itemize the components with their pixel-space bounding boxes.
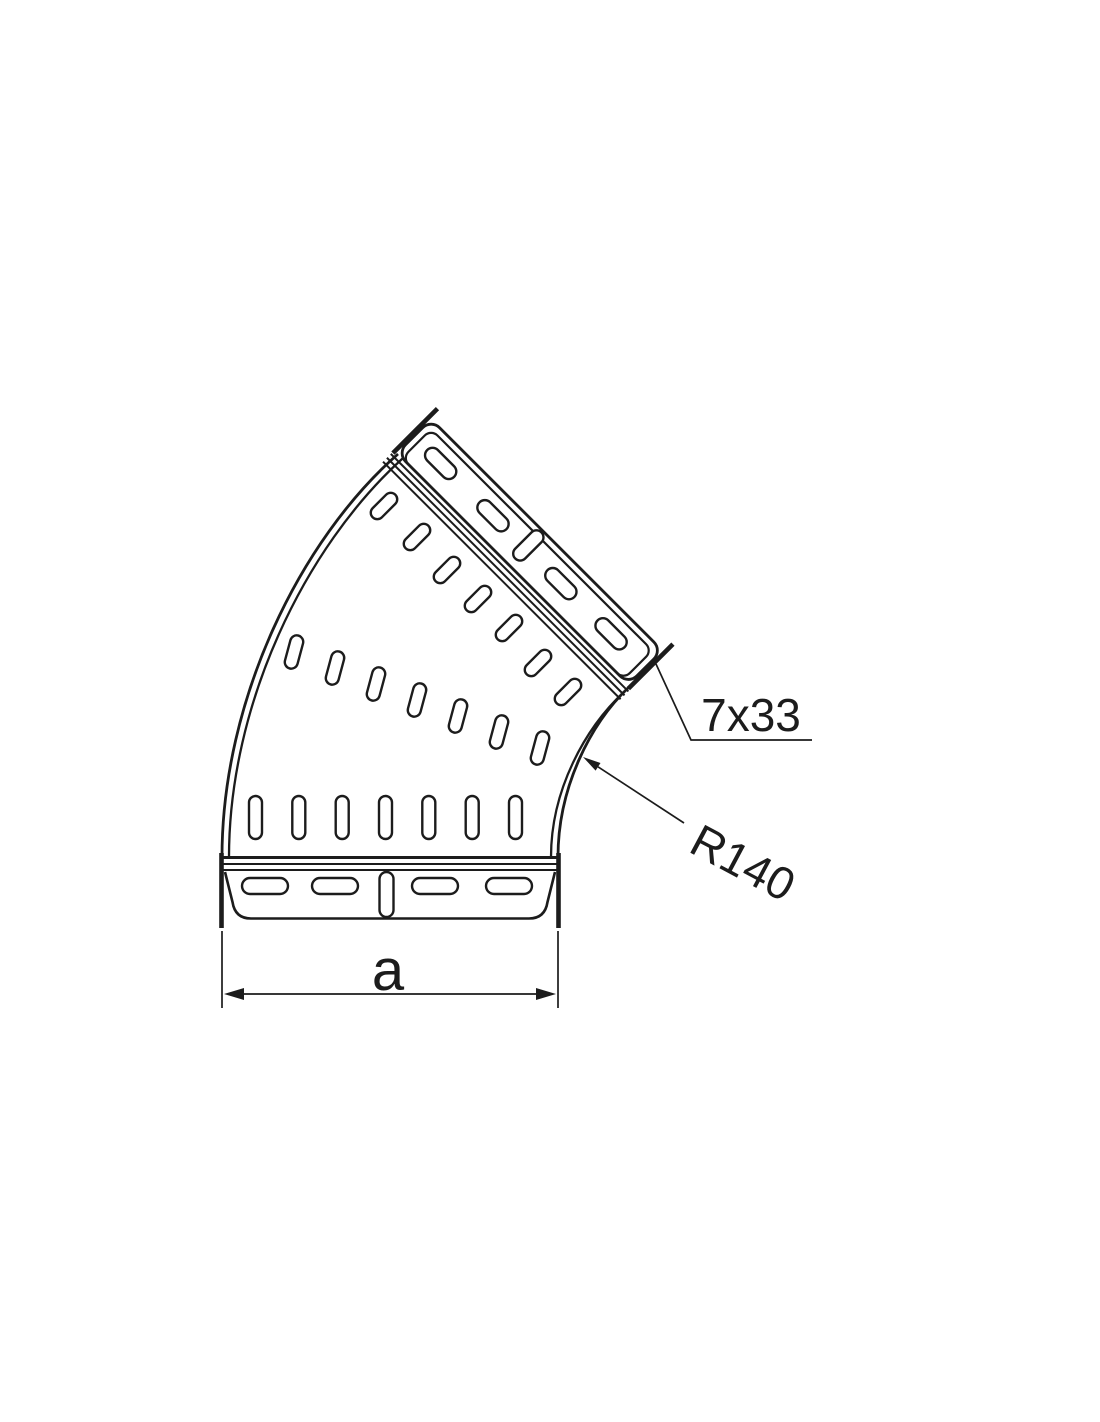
perforation-slot <box>312 878 358 894</box>
bend-radius-label: R140 <box>682 814 804 912</box>
perforation-slot <box>447 698 468 734</box>
perforation-slot <box>422 796 435 839</box>
perforation-slot <box>466 796 479 839</box>
bend-radius-callout: R140 <box>583 757 804 911</box>
perforation-slot <box>379 796 392 839</box>
perforation-slot <box>412 878 458 894</box>
perforation-slot <box>324 650 345 686</box>
perforation-slot <box>283 634 304 670</box>
width-dimension: a <box>222 931 558 1008</box>
perforation-slot <box>406 682 427 718</box>
perforation-slot <box>488 714 509 750</box>
middle-perforation-row <box>283 634 550 766</box>
perforation-slot <box>552 676 584 708</box>
top-seam-lines <box>383 454 628 699</box>
perforation-slot <box>365 666 386 702</box>
perforation-slot <box>522 647 554 679</box>
perforation-slot <box>493 612 525 644</box>
perforation-slot <box>529 730 550 766</box>
width-dimension-label: a <box>372 938 405 1003</box>
perforation-slot <box>431 554 463 586</box>
perforation-slot <box>292 796 305 839</box>
inner-wall-curve <box>551 687 629 857</box>
top-end-flange <box>383 408 674 699</box>
slot-dimension-label: 7x33 <box>701 689 801 741</box>
drawing-page: 7x33 R140 a <box>0 0 1100 1422</box>
perforation-slot <box>486 878 532 894</box>
arrowhead <box>536 988 556 1000</box>
perforation-slot <box>368 490 400 522</box>
slot-dimension-callout: 7x33 <box>656 664 812 741</box>
perforation-slot <box>336 796 349 839</box>
bottom-seam-lines <box>222 858 558 871</box>
perforation-slot <box>462 583 494 615</box>
perforation-slot <box>249 796 262 839</box>
perforation-slot <box>380 872 394 917</box>
perforation-slot <box>242 878 288 894</box>
perforation-slot <box>510 527 546 563</box>
perforation-slot <box>401 521 433 553</box>
bottom-perforation-row <box>249 796 522 839</box>
upper-perforation-row <box>368 490 584 708</box>
technical-drawing: 7x33 R140 a <box>0 0 1100 1422</box>
perforation-slot <box>509 796 522 839</box>
arrowhead <box>224 988 244 1000</box>
arrowhead <box>583 757 601 771</box>
